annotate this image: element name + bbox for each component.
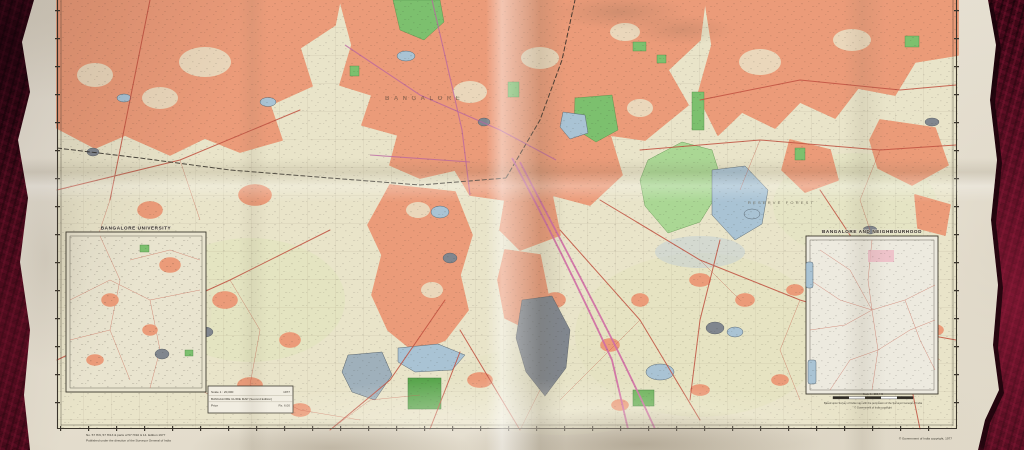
paper-map-sheet: BANGALORE RESERVE FOREST BANGALORE UNIVE… bbox=[0, 0, 1024, 450]
fold-creases bbox=[0, 0, 1024, 450]
photo-of-folded-map: BANGALORE RESERVE FOREST BANGALORE UNIVE… bbox=[0, 0, 1024, 450]
